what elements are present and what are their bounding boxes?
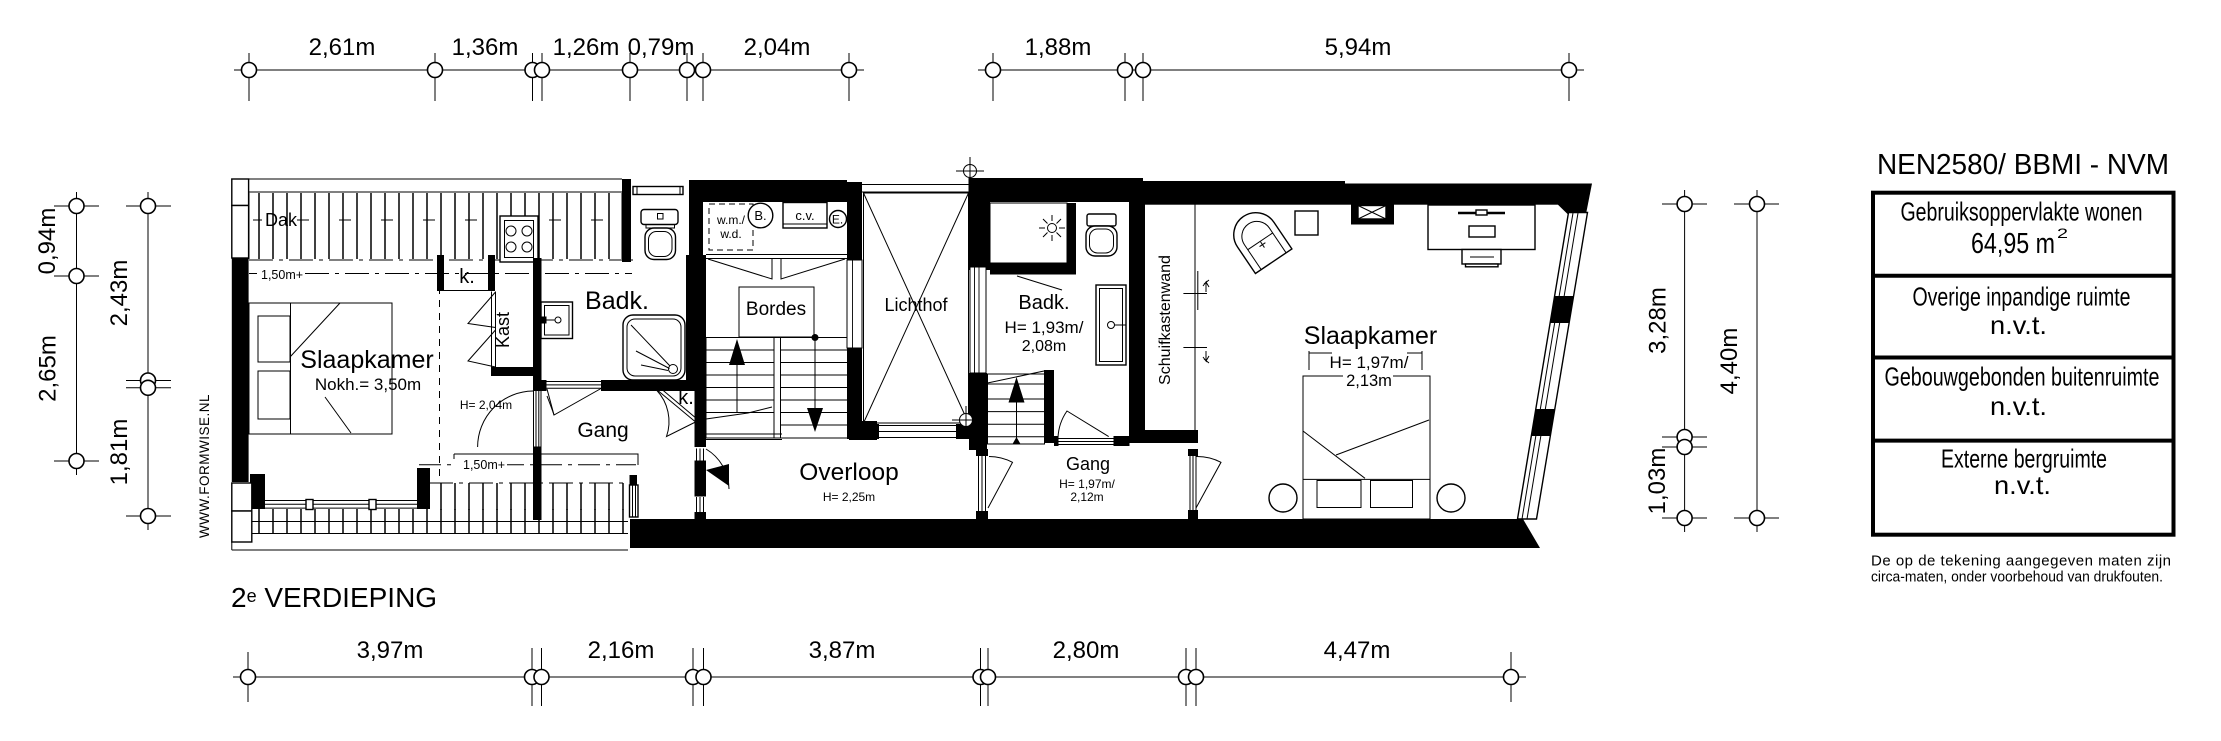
svg-text:NEN2580/ BBMI - NVM: NEN2580/ BBMI - NVM bbox=[1877, 149, 2169, 181]
svg-text:Bordes: Bordes bbox=[746, 299, 806, 320]
svg-text:1,88m: 1,88m bbox=[1025, 34, 1092, 61]
svg-text:Badk.: Badk. bbox=[1018, 292, 1069, 314]
svg-text:0,94m: 0,94m bbox=[34, 208, 61, 275]
svg-text:0,79m: 0,79m bbox=[628, 34, 695, 61]
svg-text:Overige inpandige ruimte: Overige inpandige ruimte bbox=[1913, 282, 2131, 312]
svg-text:De op de tekening aangegeven m: De op de tekening aangegeven maten zijn bbox=[1871, 553, 2171, 570]
svg-text:Kast: Kast bbox=[493, 312, 513, 348]
svg-text:2,12m: 2,12m bbox=[1070, 490, 1103, 504]
svg-text:n.v.t.: n.v.t. bbox=[1990, 391, 2047, 421]
svg-text:H= 1,97m/: H= 1,97m/ bbox=[1059, 477, 1115, 491]
svg-text:64,95 m: 64,95 m bbox=[1971, 228, 2055, 260]
svg-text:H= 1,97m/: H= 1,97m/ bbox=[1330, 353, 1409, 372]
svg-text:w.d.: w.d. bbox=[719, 227, 741, 241]
svg-text:circa-maten, onder voorbehoud: circa-maten, onder voorbehoud van drukfo… bbox=[1871, 569, 2163, 586]
svg-text:Gebruiksoppervlakte wonen: Gebruiksoppervlakte wonen bbox=[1901, 197, 2143, 227]
svg-text:2,08m: 2,08m bbox=[1022, 338, 1066, 355]
svg-text:w.m./: w.m./ bbox=[716, 213, 746, 227]
svg-text:Badk.: Badk. bbox=[585, 287, 649, 315]
svg-text:k.: k. bbox=[678, 387, 694, 409]
svg-text:3,28m: 3,28m bbox=[1645, 287, 1672, 354]
svg-text:1,81m: 1,81m bbox=[106, 419, 133, 486]
svg-text:3,87m: 3,87m bbox=[809, 637, 876, 664]
svg-text:2e VERDIEPING: 2e VERDIEPING bbox=[231, 582, 437, 613]
svg-text:2,16m: 2,16m bbox=[588, 637, 655, 664]
svg-text:n.v.t.: n.v.t. bbox=[1990, 310, 2047, 340]
svg-text:c.v.: c.v. bbox=[795, 208, 814, 223]
svg-text:Gang: Gang bbox=[1066, 454, 1110, 474]
svg-text:4,47m: 4,47m bbox=[1324, 637, 1391, 664]
svg-text:1,50m+: 1,50m+ bbox=[463, 458, 505, 472]
svg-text:2,04m: 2,04m bbox=[744, 34, 811, 61]
svg-text:H= 2,04m: H= 2,04m bbox=[460, 398, 512, 412]
svg-text:Gang: Gang bbox=[577, 419, 628, 442]
svg-text:1,03m: 1,03m bbox=[1644, 448, 1671, 515]
svg-text:Schuifkastenwand: Schuifkastenwand bbox=[1157, 255, 1174, 385]
svg-text:2,13m: 2,13m bbox=[1346, 372, 1392, 390]
svg-text:2: 2 bbox=[2057, 225, 2068, 241]
svg-text:Overloop: Overloop bbox=[799, 459, 898, 486]
svg-text:1,26m: 1,26m bbox=[553, 34, 620, 61]
svg-text:1,50m+: 1,50m+ bbox=[261, 268, 303, 282]
svg-text:Slaapkamer: Slaapkamer bbox=[1304, 322, 1437, 350]
svg-text:2,80m: 2,80m bbox=[1053, 637, 1120, 664]
svg-text:5,94m: 5,94m bbox=[1325, 34, 1392, 61]
svg-text:4,40m: 4,40m bbox=[1716, 328, 1743, 395]
svg-text:Dak: Dak bbox=[265, 210, 298, 230]
svg-text:3,97m: 3,97m bbox=[357, 637, 424, 664]
svg-text:Externe bergruimte: Externe bergruimte bbox=[1941, 444, 2107, 474]
svg-text:H= 1,93m/: H= 1,93m/ bbox=[1005, 318, 1084, 337]
svg-text:1,36m: 1,36m bbox=[452, 34, 519, 61]
svg-text:H= 2,25m: H= 2,25m bbox=[823, 490, 875, 504]
svg-text:B.: B. bbox=[754, 208, 766, 223]
svg-text:k.: k. bbox=[459, 266, 475, 288]
svg-text:n.v.t.: n.v.t. bbox=[1994, 470, 2051, 500]
svg-text:E.: E. bbox=[832, 213, 843, 227]
svg-text:Lichthof: Lichthof bbox=[884, 295, 948, 315]
svg-text:Slaapkamer: Slaapkamer bbox=[300, 346, 433, 374]
svg-text:2,43m: 2,43m bbox=[106, 260, 133, 327]
svg-text:Nokh.= 3,50m: Nokh.= 3,50m bbox=[315, 375, 421, 394]
svg-text:2,61m: 2,61m bbox=[309, 34, 376, 61]
svg-text:2,65m: 2,65m bbox=[35, 335, 62, 402]
svg-text:WWW.FORMWISE.NL: WWW.FORMWISE.NL bbox=[197, 394, 212, 538]
svg-text:Gebouwgebonden buitenruimte: Gebouwgebonden buitenruimte bbox=[1885, 362, 2160, 392]
